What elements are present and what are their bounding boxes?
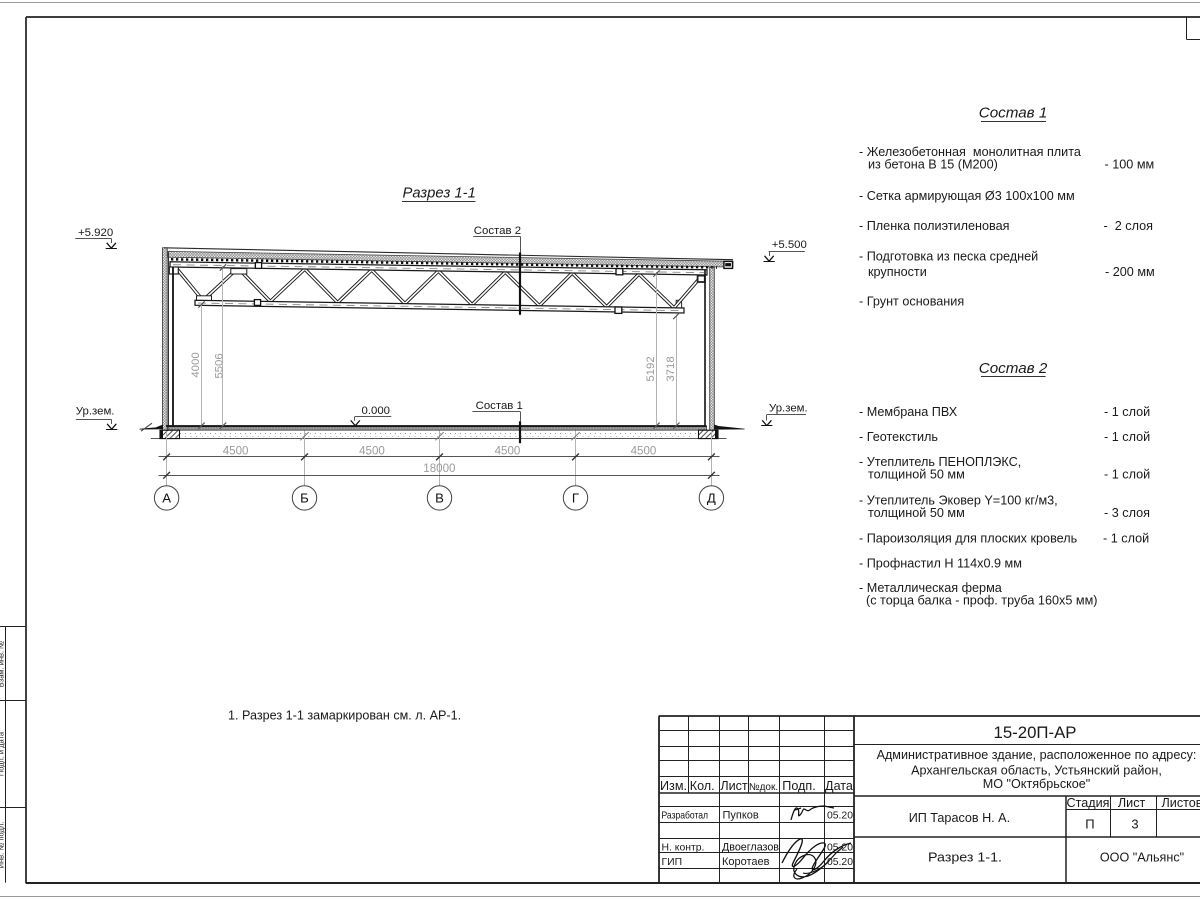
- svg-text:3718: 3718: [665, 356, 677, 381]
- svg-text:толщиной 50 мм: толщиной 50 мм: [868, 506, 965, 520]
- svg-text:Лист: Лист: [720, 779, 748, 793]
- svg-text:МО "Октябрьское": МО "Октябрьское": [983, 777, 1091, 791]
- svg-text:- 3 слоя: - 3 слоя: [1104, 506, 1150, 520]
- svg-text:Состав 2: Состав 2: [474, 225, 521, 237]
- svg-text:4500: 4500: [223, 445, 249, 458]
- svg-text:- 100 мм: - 100 мм: [1105, 158, 1155, 172]
- svg-text:Подп.: Подп.: [782, 779, 815, 793]
- svg-text:ООО "Альянс": ООО "Альянс": [1100, 851, 1184, 865]
- svg-text:- 2 слоя: - 2 слоя: [1104, 219, 1154, 233]
- svg-text:Н. контр.: Н. контр.: [662, 843, 705, 854]
- svg-text:из бетона В 15 (М200): из бетона В 15 (М200): [868, 158, 998, 172]
- svg-text:Стадия: Стадия: [1067, 796, 1110, 810]
- svg-text:- Пароизоляция для плоских кро: - Пароизоляция для плоских кровель: [859, 531, 1078, 545]
- svg-text:В: В: [435, 491, 444, 506]
- svg-text:Состав 1: Состав 1: [476, 400, 523, 412]
- svg-text:4500: 4500: [495, 445, 521, 458]
- svg-text:Лист: Лист: [1118, 796, 1146, 810]
- svg-text:5506: 5506: [214, 353, 226, 378]
- svg-text:05.20: 05.20: [827, 843, 853, 854]
- svg-text:Дата: Дата: [825, 779, 853, 793]
- svg-text:Листов: Листов: [1162, 796, 1200, 810]
- svg-text:№док.: №док.: [749, 782, 778, 793]
- svg-text:05.20: 05.20: [827, 811, 853, 822]
- svg-text:Подп. и дата: Подп. и дата: [0, 731, 5, 776]
- svg-text:Б: Б: [300, 491, 309, 506]
- svg-text:- 1 слой: - 1 слой: [1103, 531, 1149, 545]
- svg-text:ИП Тарасов Н. А.: ИП Тарасов Н. А.: [909, 811, 1010, 825]
- svg-text:- Пленка полиэтиленовая: - Пленка полиэтиленовая: [859, 219, 1009, 233]
- svg-text:+5.500: +5.500: [772, 239, 807, 251]
- svg-text:(с торца балка - проф. труба 1: (с торца балка - проф. труба 160х5 мм): [866, 593, 1097, 607]
- svg-text:- 200 мм: - 200 мм: [1105, 265, 1155, 279]
- svg-text:П: П: [1085, 817, 1094, 832]
- svg-text:3: 3: [1131, 817, 1138, 832]
- svg-text:5192: 5192: [645, 356, 657, 381]
- svg-text:4500: 4500: [359, 445, 385, 458]
- svg-text:- Геотекстиль: - Геотекстиль: [859, 430, 938, 444]
- svg-text:толщиной 50 мм: толщиной 50 мм: [868, 468, 965, 482]
- svg-text:Состав 1: Состав 1: [979, 105, 1048, 122]
- svg-text:- Профнастил Н 114х0.9 мм: - Профнастил Н 114х0.9 мм: [859, 556, 1022, 570]
- svg-text:1. Разрез 1-1 замаркирован см.: 1. Разрез 1-1 замаркирован см. л. АР-1.: [228, 709, 461, 723]
- svg-text:- Мембрана ПВХ: - Мембрана ПВХ: [859, 405, 958, 419]
- svg-text:Разрез 1-1: Разрез 1-1: [403, 186, 476, 202]
- svg-text:Кол.: Кол.: [690, 779, 715, 793]
- svg-text:Г: Г: [572, 491, 579, 506]
- svg-text:Инв. № подл.: Инв. № подл.: [0, 822, 5, 869]
- svg-text:Изм.: Изм.: [660, 779, 687, 793]
- svg-text:ГИП: ГИП: [662, 857, 683, 868]
- svg-text:Д: Д: [707, 491, 716, 506]
- svg-text:А: А: [162, 491, 171, 506]
- svg-text:Коротаев: Коротаев: [722, 856, 770, 868]
- svg-text:4000: 4000: [190, 352, 202, 377]
- svg-text:- 1 слой: - 1 слой: [1104, 405, 1150, 419]
- svg-text:Ур.зем.: Ур.зем.: [769, 403, 808, 415]
- svg-text:Разрез 1-1.: Разрез 1-1.: [928, 850, 1002, 865]
- svg-text:- Подготовка из песка средней: - Подготовка из песка средней: [859, 250, 1038, 264]
- svg-text:15-20П-АР: 15-20П-АР: [994, 723, 1077, 742]
- svg-text:Пупков: Пупков: [723, 810, 759, 822]
- svg-text:+5.920: +5.920: [78, 227, 113, 239]
- svg-text:Административное здание, распо: Административное здание, расположенное п…: [877, 748, 1197, 762]
- svg-text:Двоеглазов: Двоеглазов: [722, 842, 779, 854]
- svg-text:- 1 слой: - 1 слой: [1104, 468, 1150, 482]
- svg-text:- Грунт основания: - Грунт основания: [859, 295, 964, 309]
- svg-text:Взам. инв. №: Взам. инв. №: [0, 641, 5, 687]
- svg-text:Ур.зем.: Ур.зем.: [76, 405, 115, 417]
- svg-text:- 1 слой: - 1 слой: [1104, 430, 1150, 444]
- svg-text:Архангельская область, Устьянс: Архангельская область, Устьянский район,: [911, 764, 1162, 778]
- svg-text:4500: 4500: [631, 445, 657, 458]
- svg-text:крупности: крупности: [868, 265, 927, 279]
- svg-text:Состав 2: Состав 2: [979, 360, 1048, 377]
- svg-text:- Сетка армирующая Ø3 100х100: - Сетка армирующая Ø3 100х100 мм: [859, 189, 1075, 203]
- svg-text:18000: 18000: [423, 462, 455, 475]
- svg-text:0.000: 0.000: [362, 405, 391, 417]
- svg-text:Разработал: Разработал: [662, 810, 709, 822]
